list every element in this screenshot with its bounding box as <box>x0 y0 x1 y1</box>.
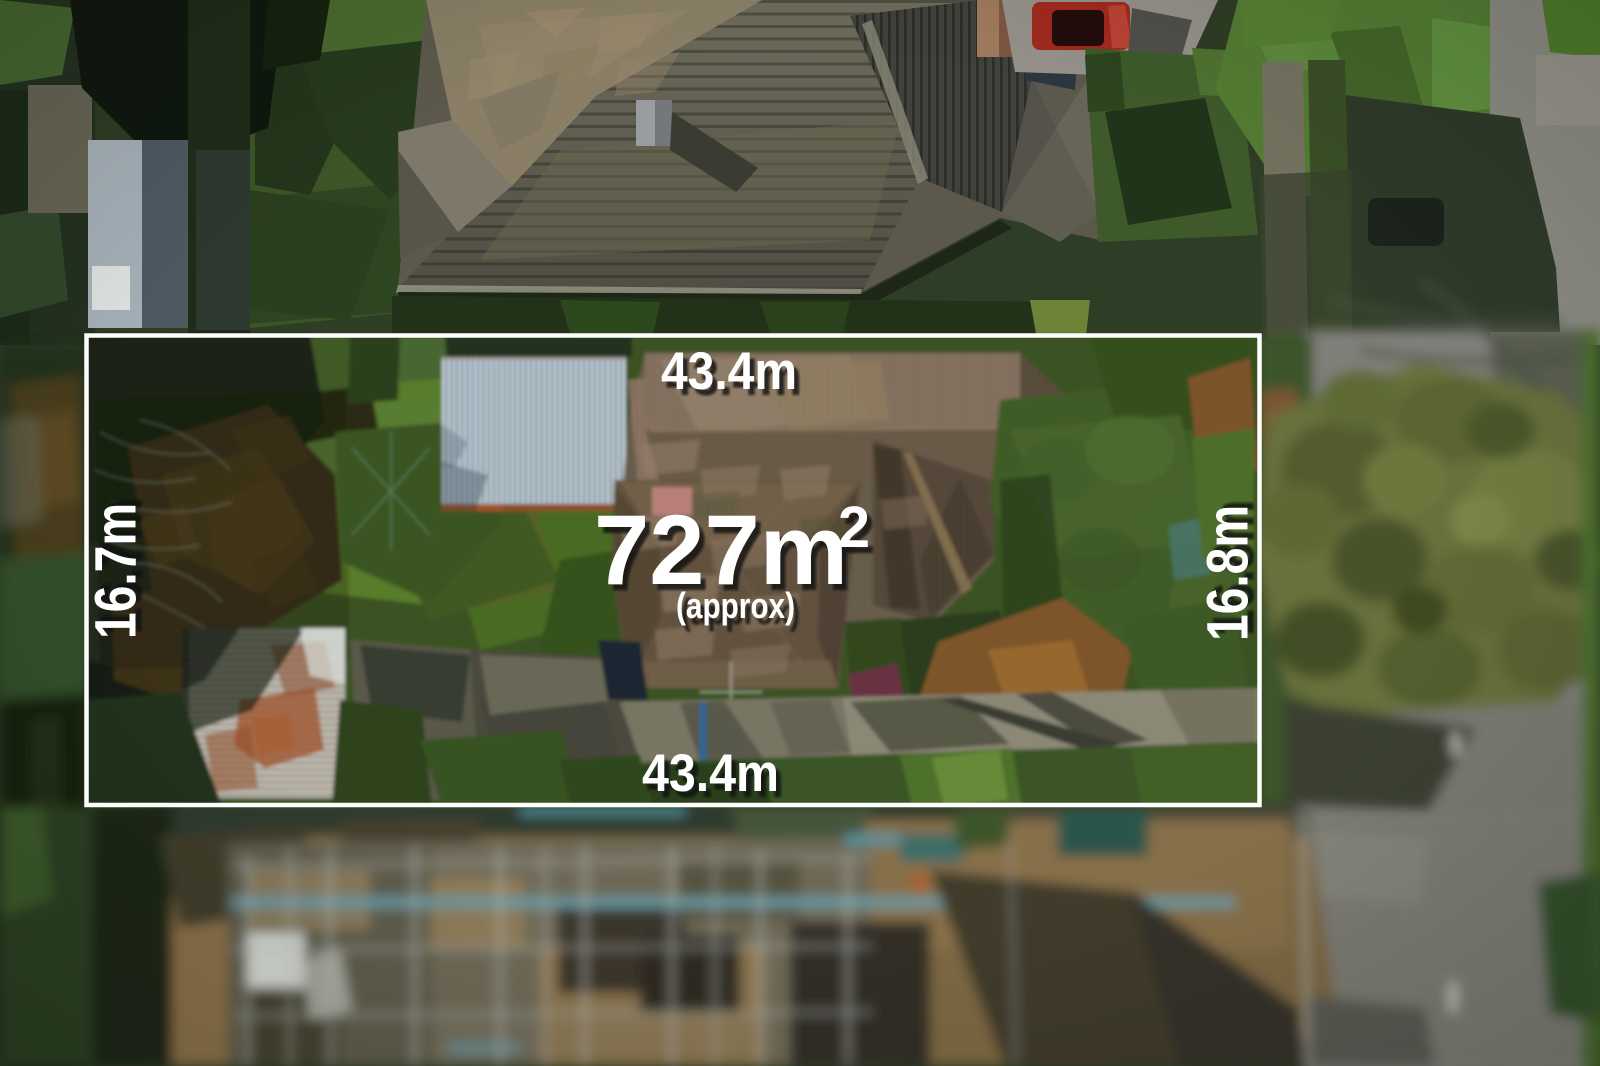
svg-text:16.8m: 16.8m <box>1196 505 1261 641</box>
svg-text:43.4m: 43.4m <box>642 744 779 803</box>
svg-text:(approx): (approx) <box>676 585 795 626</box>
svg-text:43.4m: 43.4m <box>661 342 797 401</box>
svg-text:2: 2 <box>838 495 870 560</box>
svg-text:16.7m: 16.7m <box>84 503 149 639</box>
